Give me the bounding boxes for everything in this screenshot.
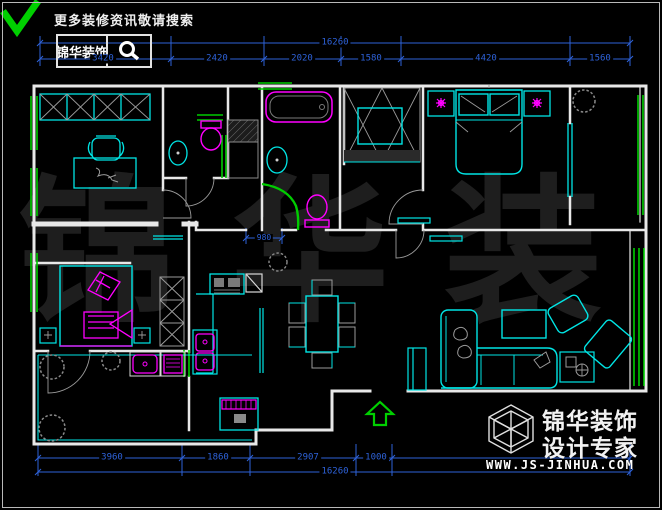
dim-top-seg-4: 1580 xyxy=(358,55,384,64)
dim-top-seg-3: 2020 xyxy=(289,55,315,64)
lounge-chair xyxy=(546,293,633,369)
bed-folds xyxy=(456,85,522,132)
dim-bottom-seg-4: 1000 xyxy=(363,454,389,463)
check-icon xyxy=(5,4,36,31)
dim-bottom-seg-3: 2907 xyxy=(295,454,321,463)
laundry-sink xyxy=(130,352,160,376)
coffee-table xyxy=(502,310,546,338)
dim-top-seg-6: 1560 xyxy=(587,55,613,64)
search-hint-text: 更多装修资讯敬请搜索 xyxy=(54,10,194,29)
dim-top-total: 16260 xyxy=(319,39,350,48)
nightstand-left xyxy=(428,91,454,116)
bed2-nightstands xyxy=(40,328,150,343)
washer-2 xyxy=(161,352,185,376)
desk xyxy=(74,158,136,188)
partition-bath1 xyxy=(222,135,226,178)
floor-plan-page: 锦 华 装 饰 xyxy=(0,0,662,510)
dim-bottom-seg-1: 3960 xyxy=(99,454,125,463)
bedroom2-slider xyxy=(153,236,183,239)
bedroom-2 xyxy=(40,236,184,346)
walls xyxy=(34,86,646,444)
cube-logo-icon xyxy=(484,402,538,456)
dining-area xyxy=(269,253,355,368)
window-bath1 xyxy=(197,115,223,120)
closet xyxy=(344,88,462,241)
living-room xyxy=(408,293,633,390)
toilet-1 xyxy=(201,121,221,150)
duct-shaft xyxy=(228,120,258,178)
dining-table xyxy=(306,296,338,352)
desk-phone xyxy=(96,168,118,182)
dim-bottom-seg-2: 1860 xyxy=(205,454,231,463)
dim-hall-opening: 980 xyxy=(255,234,273,242)
side-table xyxy=(560,352,594,382)
bathtub xyxy=(266,92,332,122)
balcony-plants xyxy=(39,352,120,441)
double-bed xyxy=(456,90,522,174)
bookcase-x-hatch xyxy=(40,94,150,120)
study-room xyxy=(40,94,150,188)
toilet-2 xyxy=(305,195,329,227)
dim-top-seg-1: 3420 xyxy=(90,55,116,64)
desk-chair xyxy=(88,136,123,160)
dim-top-seg-2: 2420 xyxy=(204,55,230,64)
washing-machine xyxy=(220,398,258,430)
tall-cabinet xyxy=(408,348,426,390)
kitchen xyxy=(193,274,263,430)
bookcase xyxy=(40,94,150,120)
plant-hall xyxy=(269,253,287,271)
fridge xyxy=(246,274,262,292)
balcony-slider xyxy=(568,123,572,197)
company-logo-block: 锦华装饰 设计专家 WWW.JS-JINHUA.COM xyxy=(484,402,654,482)
dining-chairs xyxy=(289,280,355,368)
bathroom-1 xyxy=(169,121,221,165)
bed2-bedding xyxy=(60,272,132,346)
stove xyxy=(210,274,244,294)
search-icon xyxy=(116,39,142,63)
plant-balcony xyxy=(573,90,595,112)
entry-arrow-icon xyxy=(367,402,393,425)
footer-website: WWW.JS-JINHUA.COM xyxy=(486,458,634,472)
dim-top-seg-5: 4420 xyxy=(473,55,499,64)
kitchen-slider xyxy=(260,308,263,373)
nightstand-right xyxy=(524,91,550,116)
dim-bottom-total: 16260 xyxy=(319,468,350,477)
window-living-balcony xyxy=(634,248,644,386)
wardrobe-2 xyxy=(160,277,184,346)
bathroom-2 xyxy=(266,92,332,227)
shower-partition xyxy=(262,184,298,230)
